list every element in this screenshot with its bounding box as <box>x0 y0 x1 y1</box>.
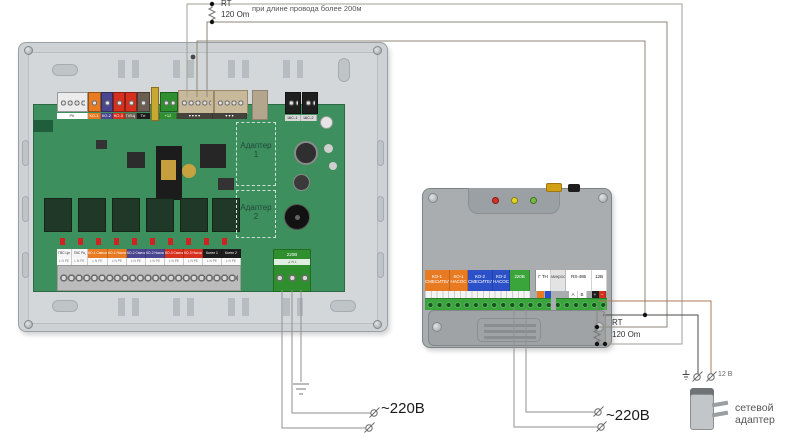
wire-mains-right-n <box>526 308 595 412</box>
wiring-diagram: Адаптер 1 Адаптер 2 РККО-1КО-2КО-3ПЛЩТн+… <box>0 0 800 439</box>
wire-rs485-b <box>207 22 667 327</box>
resistor-value-right: 120 Om <box>612 330 640 339</box>
mains-label-right: ~220В <box>606 407 650 424</box>
wire-rs485-a <box>187 4 682 344</box>
ground-symbol <box>293 384 309 394</box>
adapter-caption: сетевой адаптер <box>735 402 800 426</box>
adapter-voltage-label: 12 В <box>718 371 732 378</box>
wiring-overlay <box>0 0 800 439</box>
mains-label-left: ~220В <box>381 400 425 417</box>
junction-dots <box>210 2 647 346</box>
wire-mains-left-l <box>282 290 366 428</box>
wire-mains-left-n <box>292 290 371 413</box>
resistor-symbol-left <box>209 4 215 22</box>
adapter-ground-symbol <box>683 370 690 380</box>
wire-mains-right-l <box>514 308 598 427</box>
resistor-value-top: 120 Om <box>221 10 249 19</box>
wire-common <box>197 41 645 315</box>
cable-entry-hole <box>191 55 196 60</box>
resistor-symbol-right <box>594 327 600 344</box>
rt-label-right: RT <box>612 318 623 327</box>
rt-label-top: RT <box>221 0 232 8</box>
length-condition-note: при длине провода более 200м <box>252 4 362 13</box>
